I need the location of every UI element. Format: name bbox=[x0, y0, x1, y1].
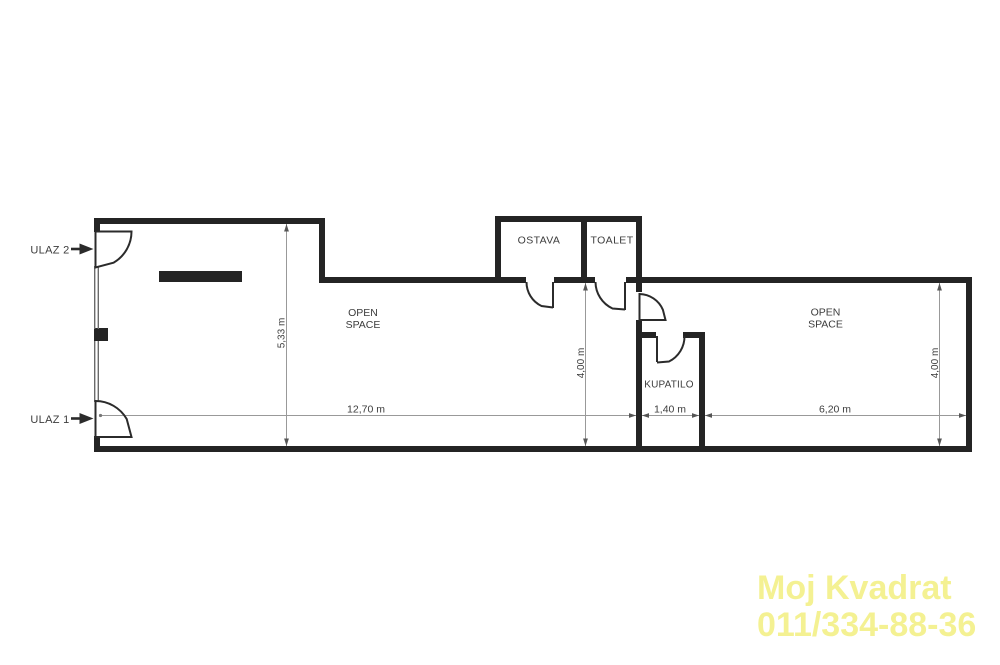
svg-text:KUPATILO: KUPATILO bbox=[644, 380, 694, 391]
svg-text:ULAZ 1: ULAZ 1 bbox=[30, 414, 69, 426]
svg-text:1,40 m: 1,40 m bbox=[654, 404, 686, 416]
svg-text:6,20 m: 6,20 m bbox=[819, 404, 851, 416]
svg-text:5,33 m: 5,33 m bbox=[277, 318, 288, 349]
svg-text:ULAZ 2: ULAZ 2 bbox=[30, 245, 69, 257]
svg-text:TOALET: TOALET bbox=[590, 235, 633, 247]
svg-text:4,00 m: 4,00 m bbox=[930, 348, 941, 379]
svg-text:12,70 m: 12,70 m bbox=[347, 404, 385, 416]
svg-text:OSTAVA: OSTAVA bbox=[518, 235, 561, 247]
svg-text:OPEN: OPEN bbox=[348, 307, 378, 319]
svg-text:OPEN: OPEN bbox=[811, 307, 841, 319]
svg-text:4,00 m: 4,00 m bbox=[576, 348, 587, 379]
svg-text:SPACE: SPACE bbox=[346, 319, 381, 331]
svg-text:SPACE: SPACE bbox=[808, 319, 843, 331]
